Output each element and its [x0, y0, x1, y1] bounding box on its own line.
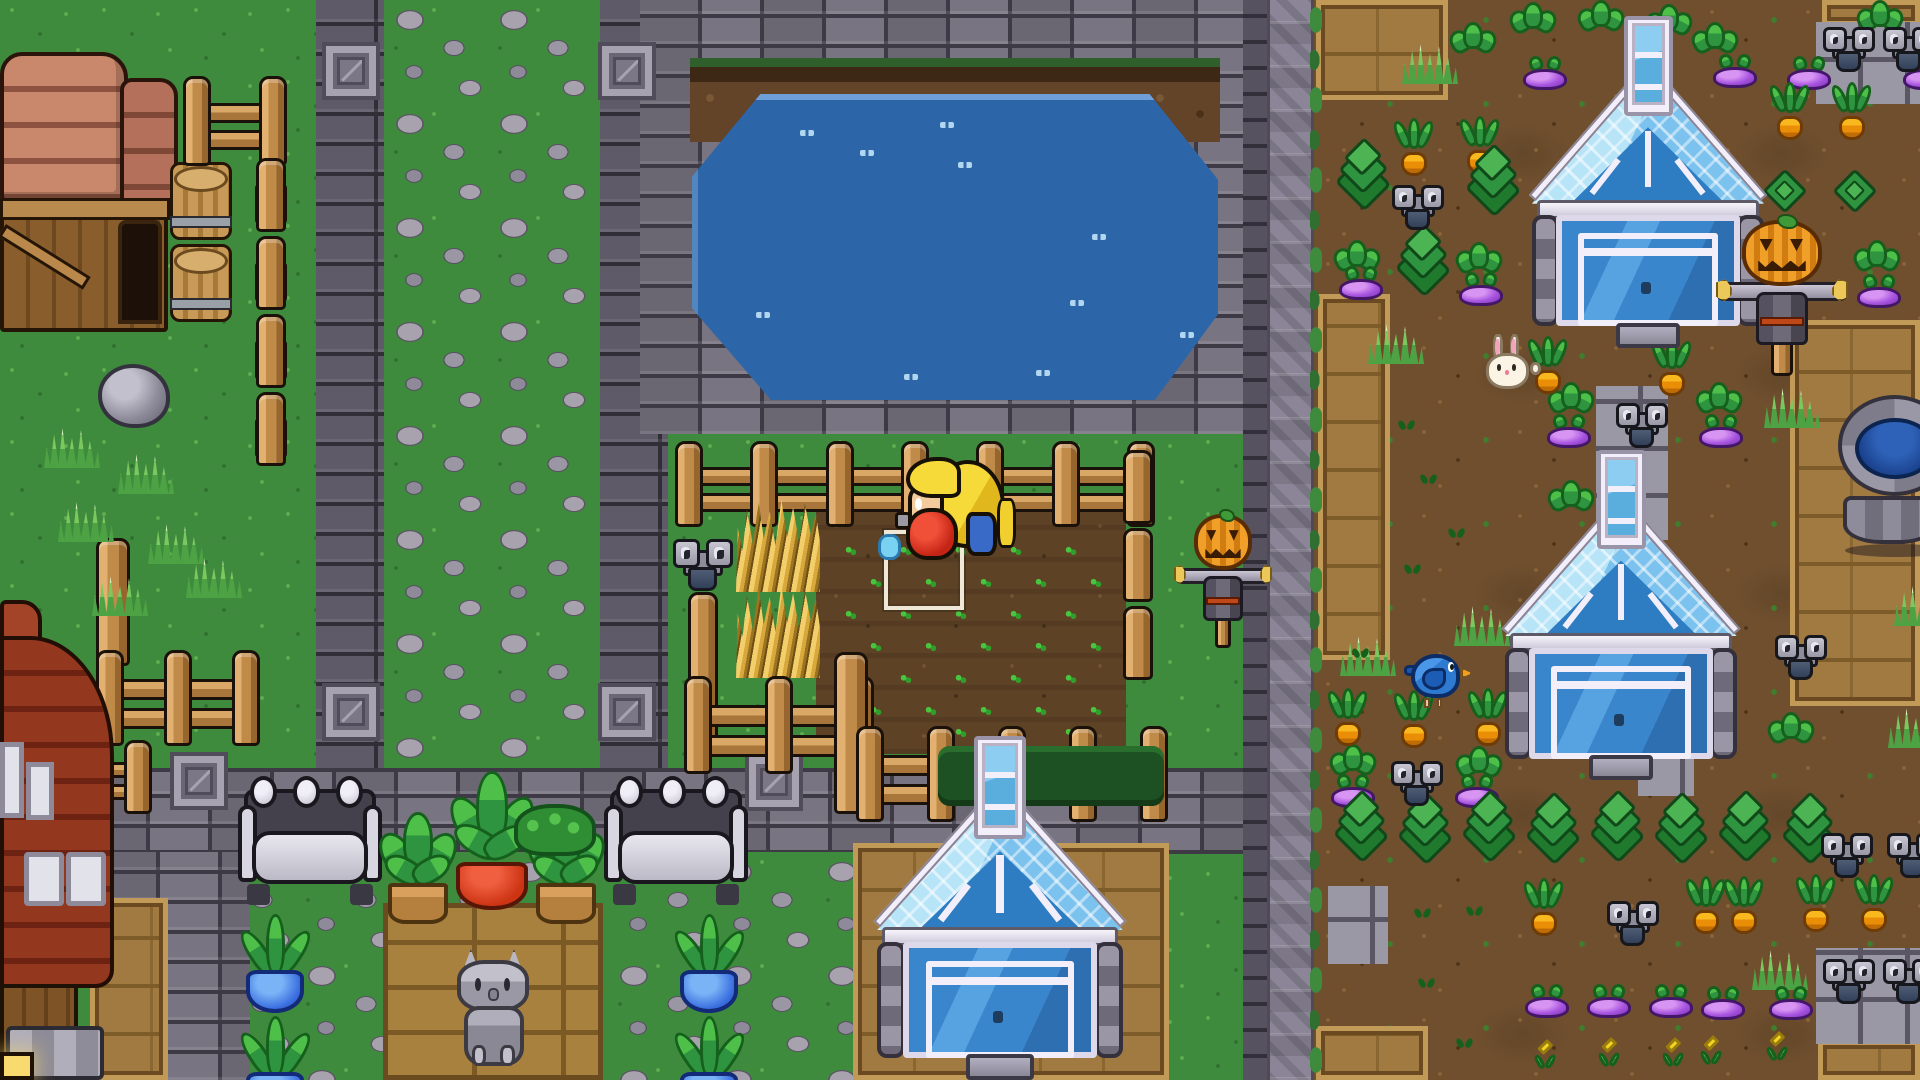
watering-can-spout	[895, 512, 912, 529]
barrel-stack[interactable]	[170, 162, 234, 324]
grass-tuft	[1454, 604, 1510, 646]
road-main	[1267, 0, 1314, 1080]
grass-tuft	[1368, 322, 1424, 364]
crop-artichoke[interactable]	[1716, 794, 1774, 858]
crop-seedling[interactable]	[1418, 972, 1436, 992]
watering-can	[906, 508, 958, 561]
stone-bench[interactable]	[604, 776, 748, 908]
crop-purple-turnip[interactable]	[1700, 986, 1746, 1020]
crop-artichoke[interactable]	[1588, 794, 1646, 858]
crop-flower-bud[interactable]	[1662, 1038, 1684, 1072]
crop-seedling[interactable]	[1404, 558, 1422, 578]
water-sparkle	[1092, 234, 1106, 240]
sprinkler[interactable]	[1820, 832, 1874, 882]
grass-tuft	[1894, 584, 1920, 626]
blue-bowl-planter[interactable]	[678, 1016, 740, 1080]
crop-flower-bud[interactable]	[1598, 1038, 1620, 1072]
player-overalls	[966, 512, 996, 555]
sprinkler[interactable]	[1774, 634, 1828, 684]
crop-carrot[interactable]	[1686, 878, 1726, 934]
grass-tuft	[1752, 948, 1808, 990]
crop-purple-turnip[interactable]	[1524, 984, 1570, 1018]
grass-tuft	[1888, 706, 1920, 748]
crop-carrot[interactable]	[1832, 84, 1872, 140]
water-sparkle	[800, 130, 814, 136]
square-tile	[322, 683, 380, 741]
crop-carrot[interactable]	[1854, 876, 1894, 932]
blue-bowl-planter[interactable]	[244, 1016, 306, 1080]
water-sparkle	[860, 150, 874, 156]
crop-purple-turnip[interactable]	[1458, 272, 1504, 306]
sprinkler[interactable]	[1822, 26, 1876, 76]
crop-purple-turnip[interactable]	[1768, 986, 1814, 1020]
water-stream	[878, 534, 901, 560]
water-sparkle	[940, 122, 954, 128]
sprinkler[interactable]	[1822, 958, 1876, 1008]
square-tile	[170, 752, 228, 810]
crop-artichoke[interactable]	[1332, 794, 1390, 858]
greenhouse-right-bottom[interactable]	[1505, 450, 1737, 780]
crop-seedling[interactable]	[1414, 902, 1432, 922]
crop-purple-turnip[interactable]	[1586, 984, 1632, 1018]
garden-bush	[514, 804, 596, 856]
square-tile	[598, 42, 656, 100]
stone-bench[interactable]	[238, 776, 382, 908]
fence-row-barn[interactable]	[183, 76, 287, 166]
wood-path-bottom-right	[1818, 1040, 1920, 1080]
crop-artichoke[interactable]	[1524, 796, 1582, 860]
crop-purple-turnip[interactable]	[1546, 414, 1592, 448]
wood-path-bottom-left	[1316, 1026, 1428, 1080]
crop-artichoke[interactable]	[1464, 148, 1522, 212]
cobble-boulevard	[384, 0, 600, 772]
sprinkler[interactable]	[1606, 900, 1660, 950]
crop-carrot[interactable]	[1394, 120, 1434, 176]
crop-diamond-green[interactable]	[1834, 170, 1876, 212]
crop-carrot[interactable]	[1796, 876, 1836, 932]
crop-purple-turnip[interactable]	[1698, 414, 1744, 448]
stone-well[interactable]	[1838, 392, 1920, 554]
crop-carrot[interactable]	[1724, 878, 1764, 934]
crop-seedling[interactable]	[1420, 468, 1438, 488]
pond-water[interactable]	[692, 94, 1218, 400]
grass-tuft	[58, 500, 114, 542]
brick-strip-left	[316, 0, 384, 772]
crop-artichoke[interactable]	[1394, 228, 1452, 292]
pond-water-surface	[692, 94, 1218, 400]
crop-seedling[interactable]	[1466, 900, 1484, 920]
grass-tuft	[1764, 386, 1820, 428]
blue-bowl-planter[interactable]	[678, 914, 740, 1022]
potted-plant[interactable]	[381, 810, 455, 924]
crop-flower-bud[interactable]	[1700, 1036, 1722, 1070]
greenhouse-door-handle	[1641, 282, 1651, 294]
bluebird[interactable]	[1404, 648, 1472, 708]
crop-purple-turnip[interactable]	[1856, 274, 1902, 308]
grass-tuft	[186, 556, 242, 598]
crop-flower-bud[interactable]	[1534, 1040, 1556, 1074]
bird-beak	[1461, 668, 1472, 678]
player-character[interactable]	[878, 450, 1016, 570]
crop-carrot[interactable]	[1524, 880, 1564, 936]
boulder[interactable]	[98, 364, 170, 428]
crop-purple-turnip[interactable]	[1338, 266, 1384, 300]
crop-seedling[interactable]	[1456, 1032, 1474, 1052]
crop-purple-turnip[interactable]	[1648, 984, 1694, 1018]
scarecrow-pumpkin[interactable]	[1174, 514, 1272, 648]
water-sparkle	[904, 374, 918, 380]
scarecrow-right[interactable]	[1716, 220, 1848, 376]
wheat-patch[interactable]	[736, 500, 820, 592]
barn-door	[118, 220, 162, 324]
road-moss-edge	[1310, 0, 1322, 1080]
pumpkin-head	[1742, 220, 1821, 286]
water-sparkle	[1180, 332, 1194, 338]
grass-tuft	[118, 452, 174, 494]
stone-tiles-left-mid	[1328, 886, 1388, 964]
water-sparkle	[1070, 300, 1084, 306]
sprinkler[interactable]	[1391, 184, 1445, 234]
farmhouse[interactable]	[0, 556, 120, 1080]
sprinkler[interactable]	[1615, 402, 1669, 452]
blue-bowl-planter[interactable]	[244, 914, 306, 1022]
square-tile	[322, 42, 380, 100]
crop-carrot[interactable]	[1328, 690, 1368, 746]
water-sparkle	[1036, 370, 1050, 376]
greenhouse-door-handle	[993, 1011, 1003, 1023]
sprinkler[interactable]	[1886, 832, 1920, 882]
sprinkler[interactable]	[1882, 958, 1920, 1008]
crop-turnip-greens[interactable]	[1768, 712, 1814, 750]
crop-carrot[interactable]	[1468, 690, 1508, 746]
fence-column-left[interactable]	[252, 158, 290, 488]
crop-artichoke[interactable]	[1334, 142, 1392, 206]
crop-flower-bud[interactable]	[1766, 1032, 1788, 1066]
game-viewport[interactable]	[0, 0, 1920, 1080]
sprinkler[interactable]	[1882, 26, 1920, 76]
fence-row-house-upper[interactable]	[96, 650, 260, 746]
cat-statue[interactable]	[454, 944, 534, 1074]
barn[interactable]	[0, 52, 180, 332]
crop-artichoke[interactable]	[1652, 796, 1710, 860]
crop-diamond-green[interactable]	[1764, 170, 1806, 212]
greenhouse-center[interactable]	[877, 736, 1123, 1080]
sprinkler[interactable]	[1390, 760, 1444, 810]
square-tile	[598, 683, 656, 741]
crop-seedling[interactable]	[1448, 522, 1466, 542]
water-sparkle	[958, 162, 972, 168]
crop-artichoke[interactable]	[1460, 794, 1518, 858]
crop-seedling[interactable]	[1398, 414, 1416, 434]
greenhouse-door-handle	[1614, 714, 1624, 726]
crop-turnip-greens[interactable]	[1854, 240, 1900, 278]
lit-window	[0, 1052, 34, 1080]
water-sparkle	[756, 312, 770, 318]
crop-seedling[interactable]	[1352, 642, 1370, 662]
crop-carrot[interactable]	[1770, 84, 1810, 140]
wheat-patch[interactable]	[736, 586, 820, 678]
crop-carrot[interactable]	[1652, 340, 1692, 396]
crop-turnip-greens[interactable]	[1450, 22, 1496, 60]
pumpkin-head	[1194, 514, 1253, 570]
grass-tuft	[44, 426, 100, 468]
